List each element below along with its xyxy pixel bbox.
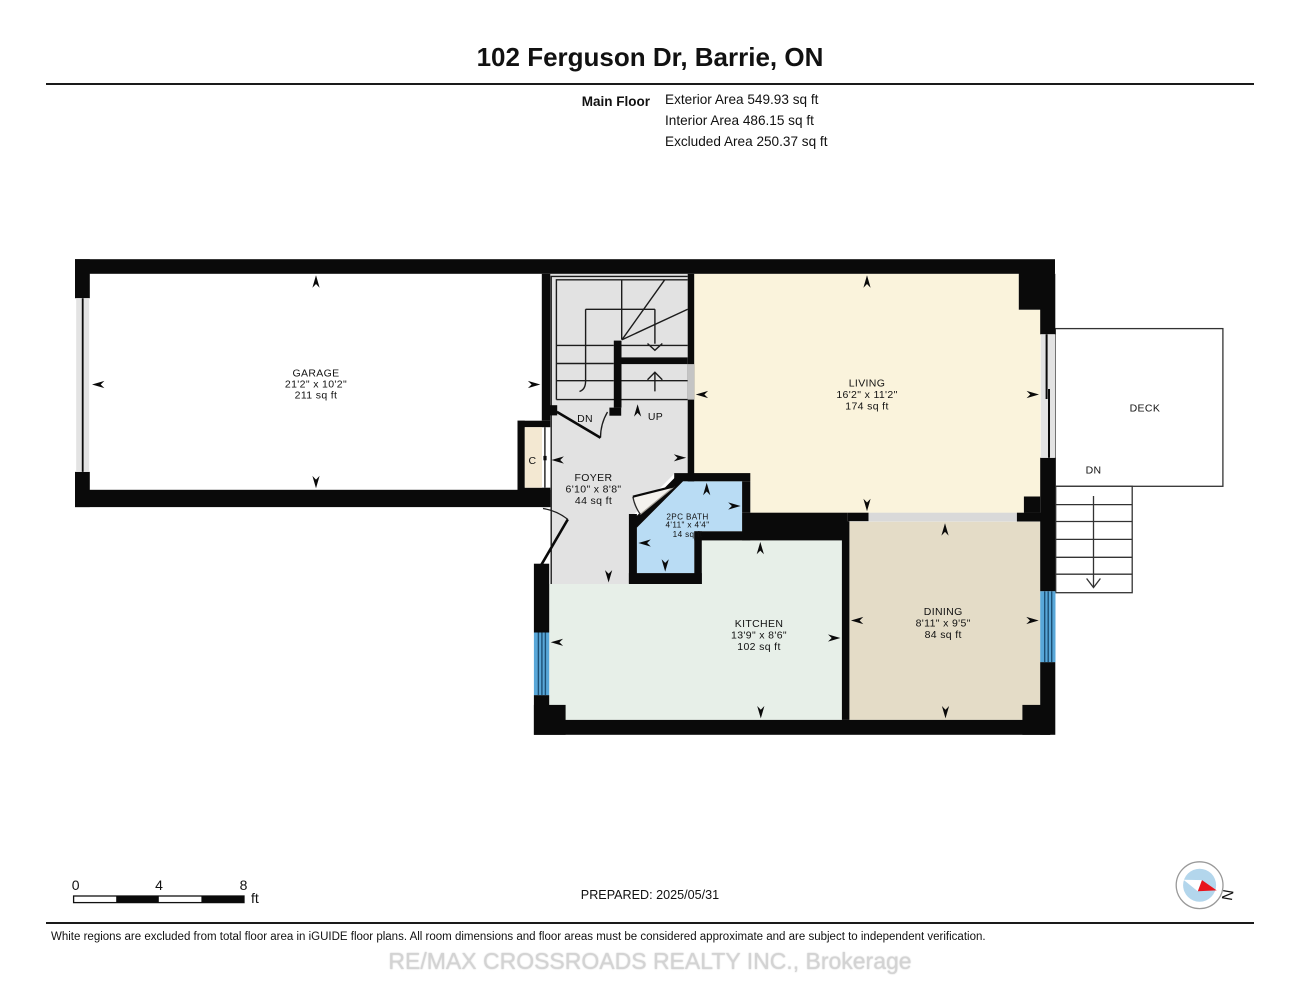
svg-text:DINING: DINING [924, 606, 963, 618]
svg-text:KITCHEN: KITCHEN [735, 618, 784, 630]
svg-text:6'10" x 8'8": 6'10" x 8'8" [566, 483, 622, 495]
svg-text:8'11" x 9'5": 8'11" x 9'5" [916, 617, 971, 629]
svg-text:C: C [529, 455, 537, 467]
svg-text:44 sq ft: 44 sq ft [575, 495, 612, 507]
svg-text:14 sq ft: 14 sq ft [673, 530, 703, 539]
svg-text:13'9" x 8'6": 13'9" x 8'6" [731, 629, 787, 641]
svg-text:DN: DN [577, 413, 593, 425]
svg-text:DN: DN [1086, 465, 1102, 477]
svg-text:DECK: DECK [1130, 403, 1161, 415]
svg-text:4'11" x 4'4": 4'11" x 4'4" [666, 521, 710, 530]
svg-text:LIVING: LIVING [849, 377, 886, 389]
svg-text:84 sq ft: 84 sq ft [925, 629, 962, 641]
svg-text:16'2" x 11'2": 16'2" x 11'2" [836, 389, 897, 401]
svg-text:174 sq ft: 174 sq ft [845, 400, 888, 412]
svg-text:102 sq ft: 102 sq ft [737, 641, 780, 653]
svg-text:211 sq ft: 211 sq ft [295, 389, 338, 401]
svg-text:GARAGE: GARAGE [292, 367, 339, 379]
svg-text:UP: UP [648, 411, 663, 423]
svg-text:FOYER: FOYER [575, 472, 613, 484]
